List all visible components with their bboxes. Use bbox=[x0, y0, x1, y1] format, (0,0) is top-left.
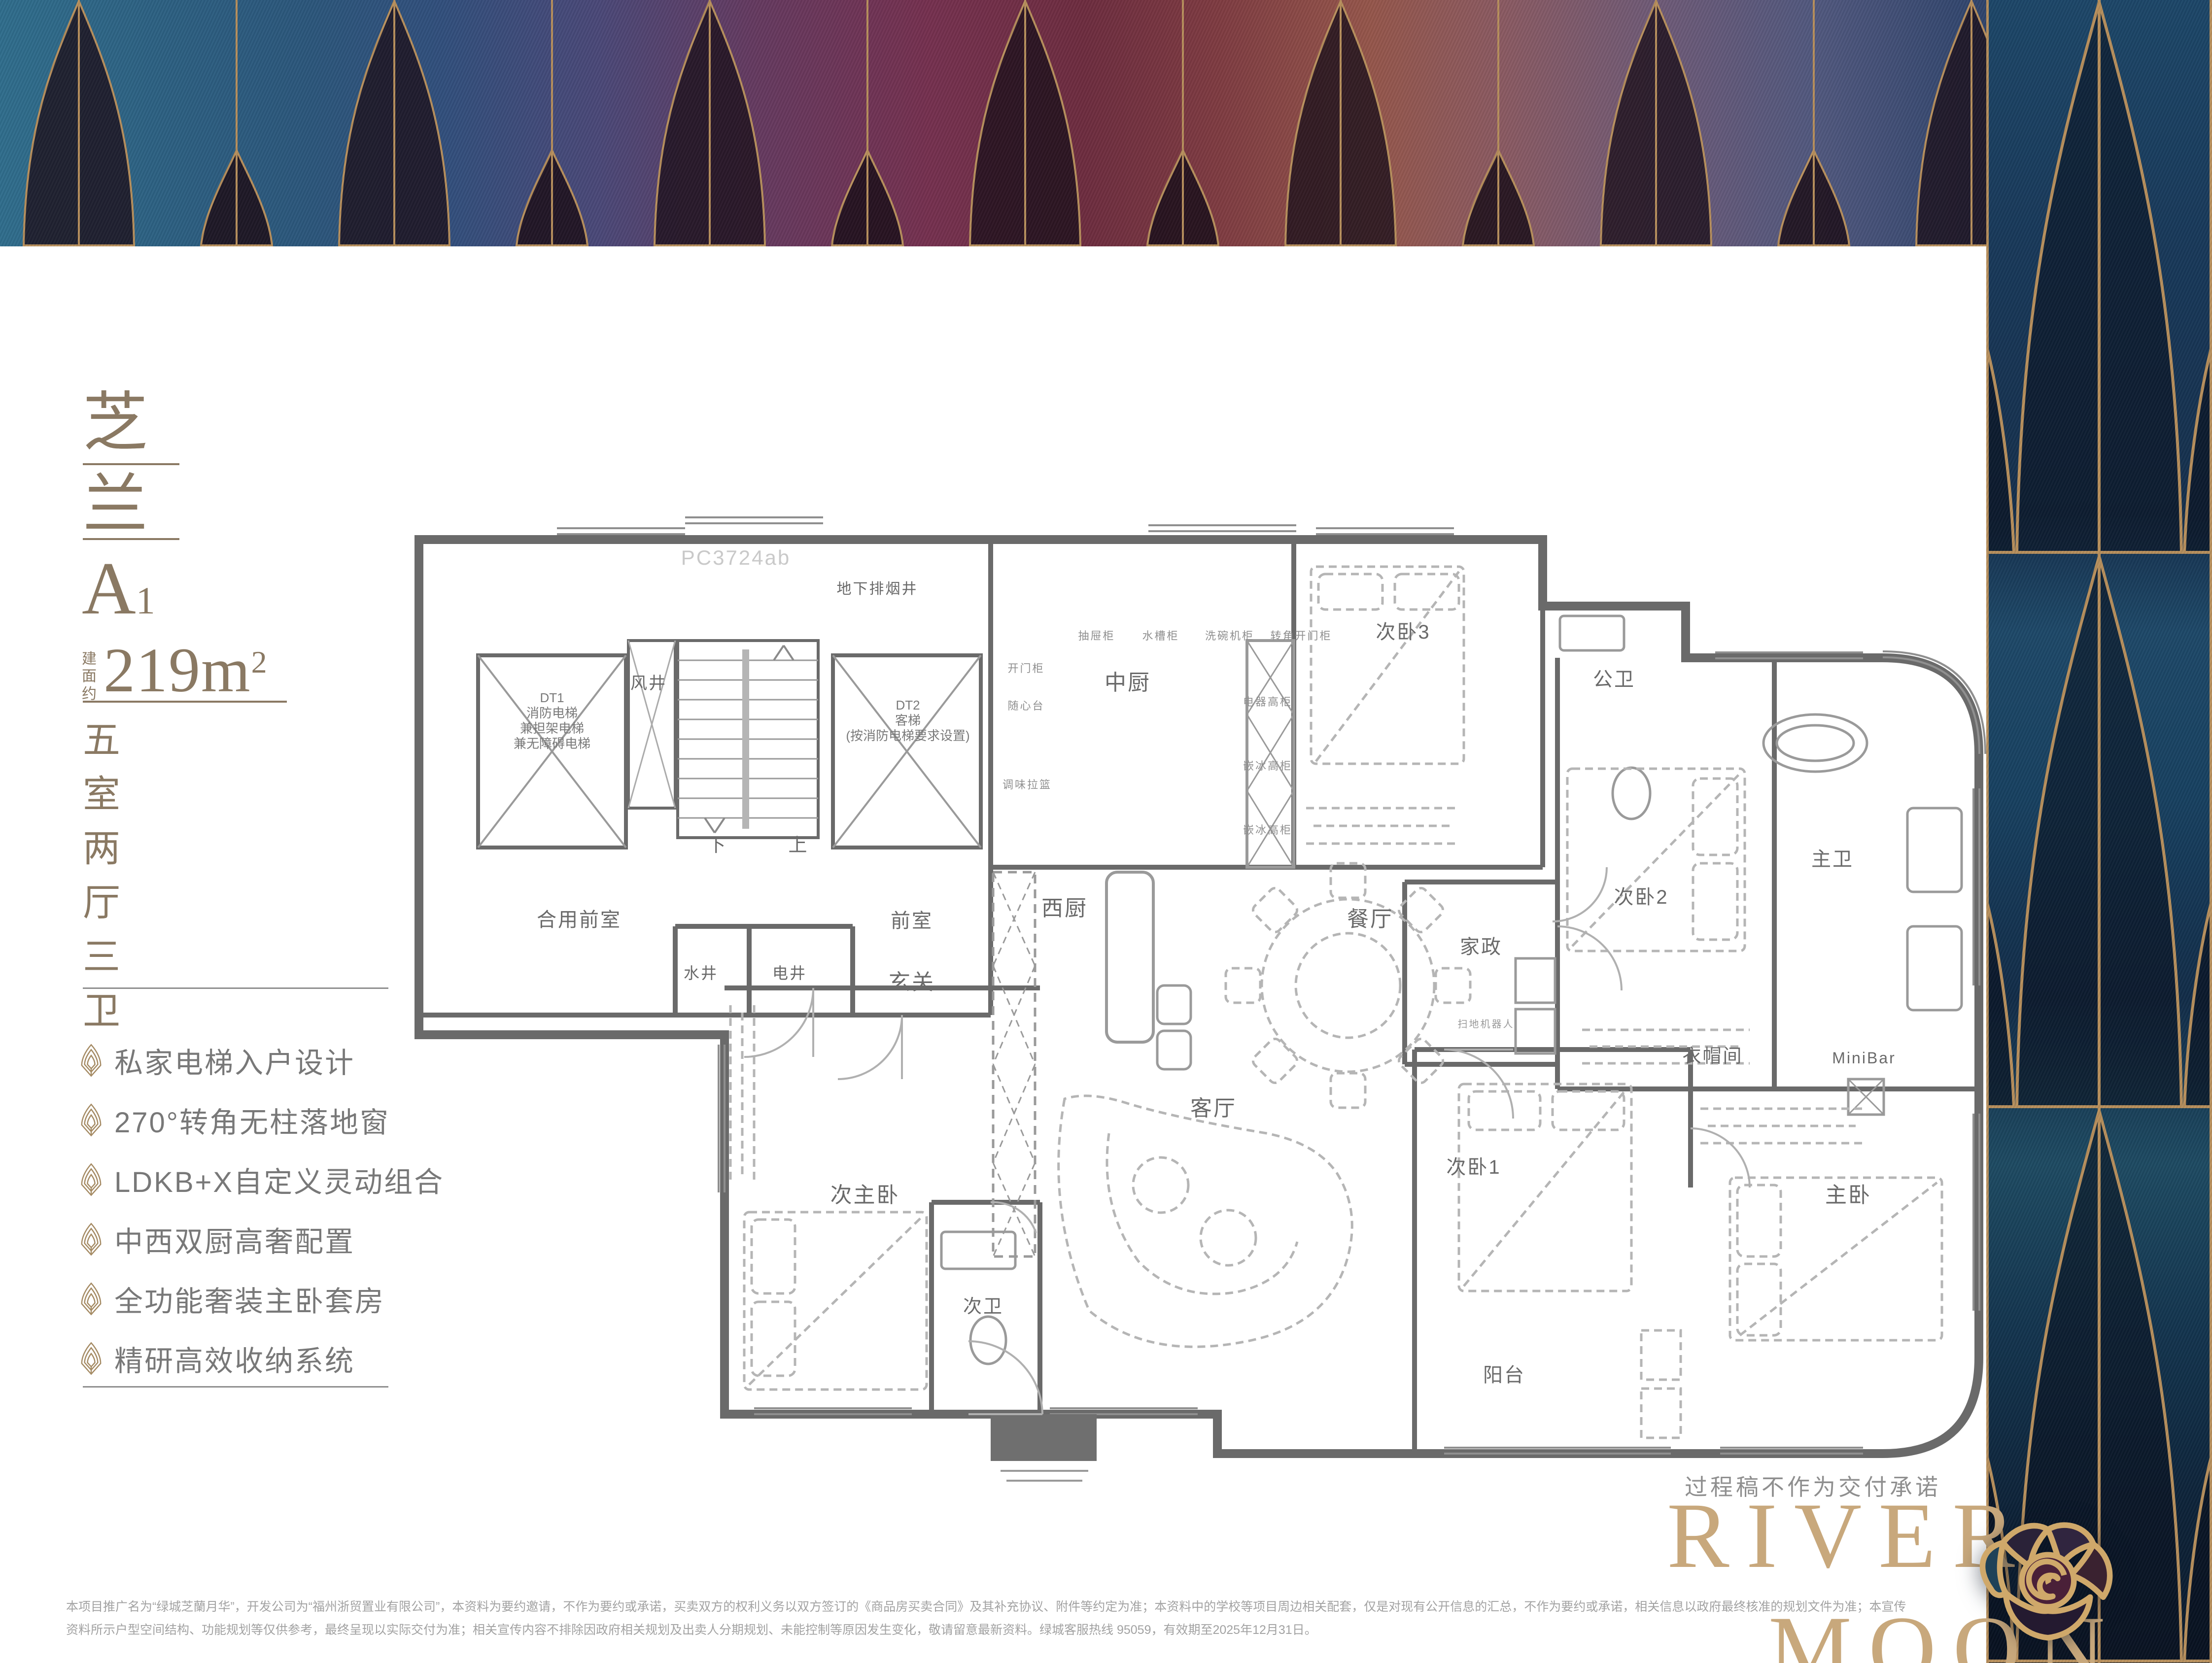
room-label: 水井 bbox=[684, 964, 718, 982]
room-label: 次卧3 bbox=[1376, 621, 1430, 643]
room-label: 嵌冰高柜 bbox=[1243, 760, 1292, 772]
arch-pattern-right-icon bbox=[1986, 0, 2212, 1663]
room-label: 地下排烟井 bbox=[837, 581, 918, 597]
room-label: 前室 bbox=[891, 910, 933, 932]
room-label: 中厨 bbox=[1105, 671, 1151, 695]
features-divider-bottom bbox=[83, 1386, 388, 1388]
room-label: 餐厅 bbox=[1347, 907, 1393, 931]
fan-icon bbox=[79, 1162, 104, 1197]
elevator-label: DT1 bbox=[540, 690, 564, 705]
elevator-label: (按消防电梯要求设置) bbox=[846, 728, 969, 743]
room-label: 合用前室 bbox=[537, 909, 622, 931]
room-label: 电井 bbox=[772, 964, 807, 982]
elevator-label: DT2 bbox=[896, 698, 920, 713]
unit-type: A1 bbox=[82, 551, 155, 626]
room-label: 次卧2 bbox=[1614, 886, 1668, 908]
deco-top-band bbox=[0, 0, 2212, 246]
feature-text: 中西双厨高奢配置 bbox=[114, 1219, 355, 1260]
room-label: 电器高柜 bbox=[1243, 696, 1292, 708]
fan-icon bbox=[79, 1102, 104, 1138]
room-label: 公卫 bbox=[1593, 669, 1635, 690]
feature-text: 全功能奢装主卧套房 bbox=[114, 1278, 385, 1320]
room-label: MiniBar bbox=[1832, 1049, 1896, 1067]
title-char-1: 芝 bbox=[83, 390, 280, 455]
feature-item: 中西双厨高奢配置 bbox=[79, 1220, 355, 1259]
poster: 芝 兰 A1 建面约 219m2 五室两厅三卫 私家电梯入户设计270°转角无柱… bbox=[0, 0, 2212, 1663]
elevator-label: 消防电梯 bbox=[526, 706, 578, 720]
floor-plan: 玄关合用前室前室水井电井风井中厨次卧3公卫次卧2主卫西厨餐厅家政客厅次主卧次卫次… bbox=[409, 493, 2016, 1508]
fan-icon bbox=[79, 1222, 104, 1257]
room-label: 上 bbox=[788, 835, 808, 856]
room-label: 风井 bbox=[630, 674, 667, 693]
room-label: 主卫 bbox=[1811, 848, 1854, 870]
layout-text: 五室两厅三卫 bbox=[83, 710, 125, 1035]
feature-item: 全功能奢装主卧套房 bbox=[79, 1279, 385, 1319]
room-label: 调味拉篮 bbox=[1002, 779, 1052, 791]
elevator-label: 客梯 bbox=[895, 713, 921, 728]
area-value: 219m2 bbox=[104, 639, 268, 702]
room-label: 次主卧 bbox=[830, 1183, 900, 1207]
fan-icon bbox=[79, 1281, 104, 1317]
elevator-label: 兼无障碍电梯 bbox=[514, 736, 590, 751]
room-label: 次卧1 bbox=[1446, 1156, 1501, 1178]
room-label: 客厅 bbox=[1190, 1096, 1237, 1120]
title-divider-1 bbox=[83, 463, 179, 465]
room-label: 玄关 bbox=[889, 970, 935, 994]
room-label: 阳台 bbox=[1483, 1364, 1525, 1386]
title-divider-2 bbox=[83, 538, 179, 540]
room-label: 抽屉柜 bbox=[1078, 630, 1115, 642]
room-label: 转角开门柜 bbox=[1270, 630, 1332, 642]
room-label: 主卧 bbox=[1825, 1183, 1871, 1207]
deco-right-band bbox=[1986, 0, 2212, 1663]
area-prefix: 建面约 bbox=[82, 650, 99, 703]
feature-item: 精研高效收纳系统 bbox=[79, 1339, 355, 1378]
room-label: 次卫 bbox=[963, 1296, 1003, 1317]
room-label: 衣帽间 bbox=[1682, 1046, 1743, 1067]
title-char-2: 兰 bbox=[83, 472, 280, 537]
room-label: 洗碗机柜 bbox=[1205, 630, 1254, 642]
disclaimer-line-1: 本项目推广名为“绿城芝蘭月华”，开发公司为“福州浙贸置业有限公司”，本资料为要约… bbox=[66, 1595, 1959, 1619]
feature-text: 精研高效收纳系统 bbox=[114, 1338, 355, 1379]
arch-pattern-top-icon bbox=[0, 0, 2212, 246]
area-divider bbox=[83, 701, 287, 703]
features-divider-top bbox=[83, 987, 388, 989]
plan-doors bbox=[744, 867, 1750, 1414]
room-label: 家政 bbox=[1460, 936, 1502, 958]
feature-item: 270°转角无柱落地窗 bbox=[79, 1100, 390, 1140]
room-label: 扫地机器人 bbox=[1458, 1018, 1515, 1030]
room-label: 开门柜 bbox=[1007, 662, 1044, 675]
room-label: PC3724ab bbox=[681, 546, 791, 569]
feature-text: 私家电梯入户设计 bbox=[114, 1040, 355, 1081]
elevator-label: 兼担架电梯 bbox=[520, 721, 584, 736]
room-label: 嵌冰高柜 bbox=[1243, 824, 1292, 836]
floor-plan-drawing: 玄关合用前室前室水井电井风井中厨次卧3公卫次卧2主卫西厨餐厅家政客厅次主卧次卫次… bbox=[409, 493, 2016, 1508]
feature-text: LDKB+X自定义灵动组合 bbox=[114, 1159, 444, 1200]
room-label: 下 bbox=[707, 835, 727, 856]
feature-item: LDKB+X自定义灵动组合 bbox=[79, 1160, 444, 1199]
room-label: 西厨 bbox=[1041, 896, 1088, 920]
disclaimer-line-2: 资料所示户型空间结构、功能规划等仅供参考，最终呈现以实际交付为准；相关宣传内容不… bbox=[66, 1619, 1959, 1642]
room-label: 随心台 bbox=[1007, 700, 1044, 712]
fan-icon bbox=[79, 1043, 104, 1078]
room-label: 水槽柜 bbox=[1142, 630, 1179, 642]
disclaimer: 本项目推广名为“绿城芝蘭月华”，开发公司为“福州浙贸置业有限公司”，本资料为要约… bbox=[66, 1595, 1959, 1642]
rose-icon bbox=[1964, 1512, 2132, 1663]
feature-item: 私家电梯入户设计 bbox=[79, 1041, 355, 1080]
fan-icon bbox=[79, 1341, 104, 1376]
feature-text: 270°转角无柱落地窗 bbox=[114, 1099, 390, 1141]
